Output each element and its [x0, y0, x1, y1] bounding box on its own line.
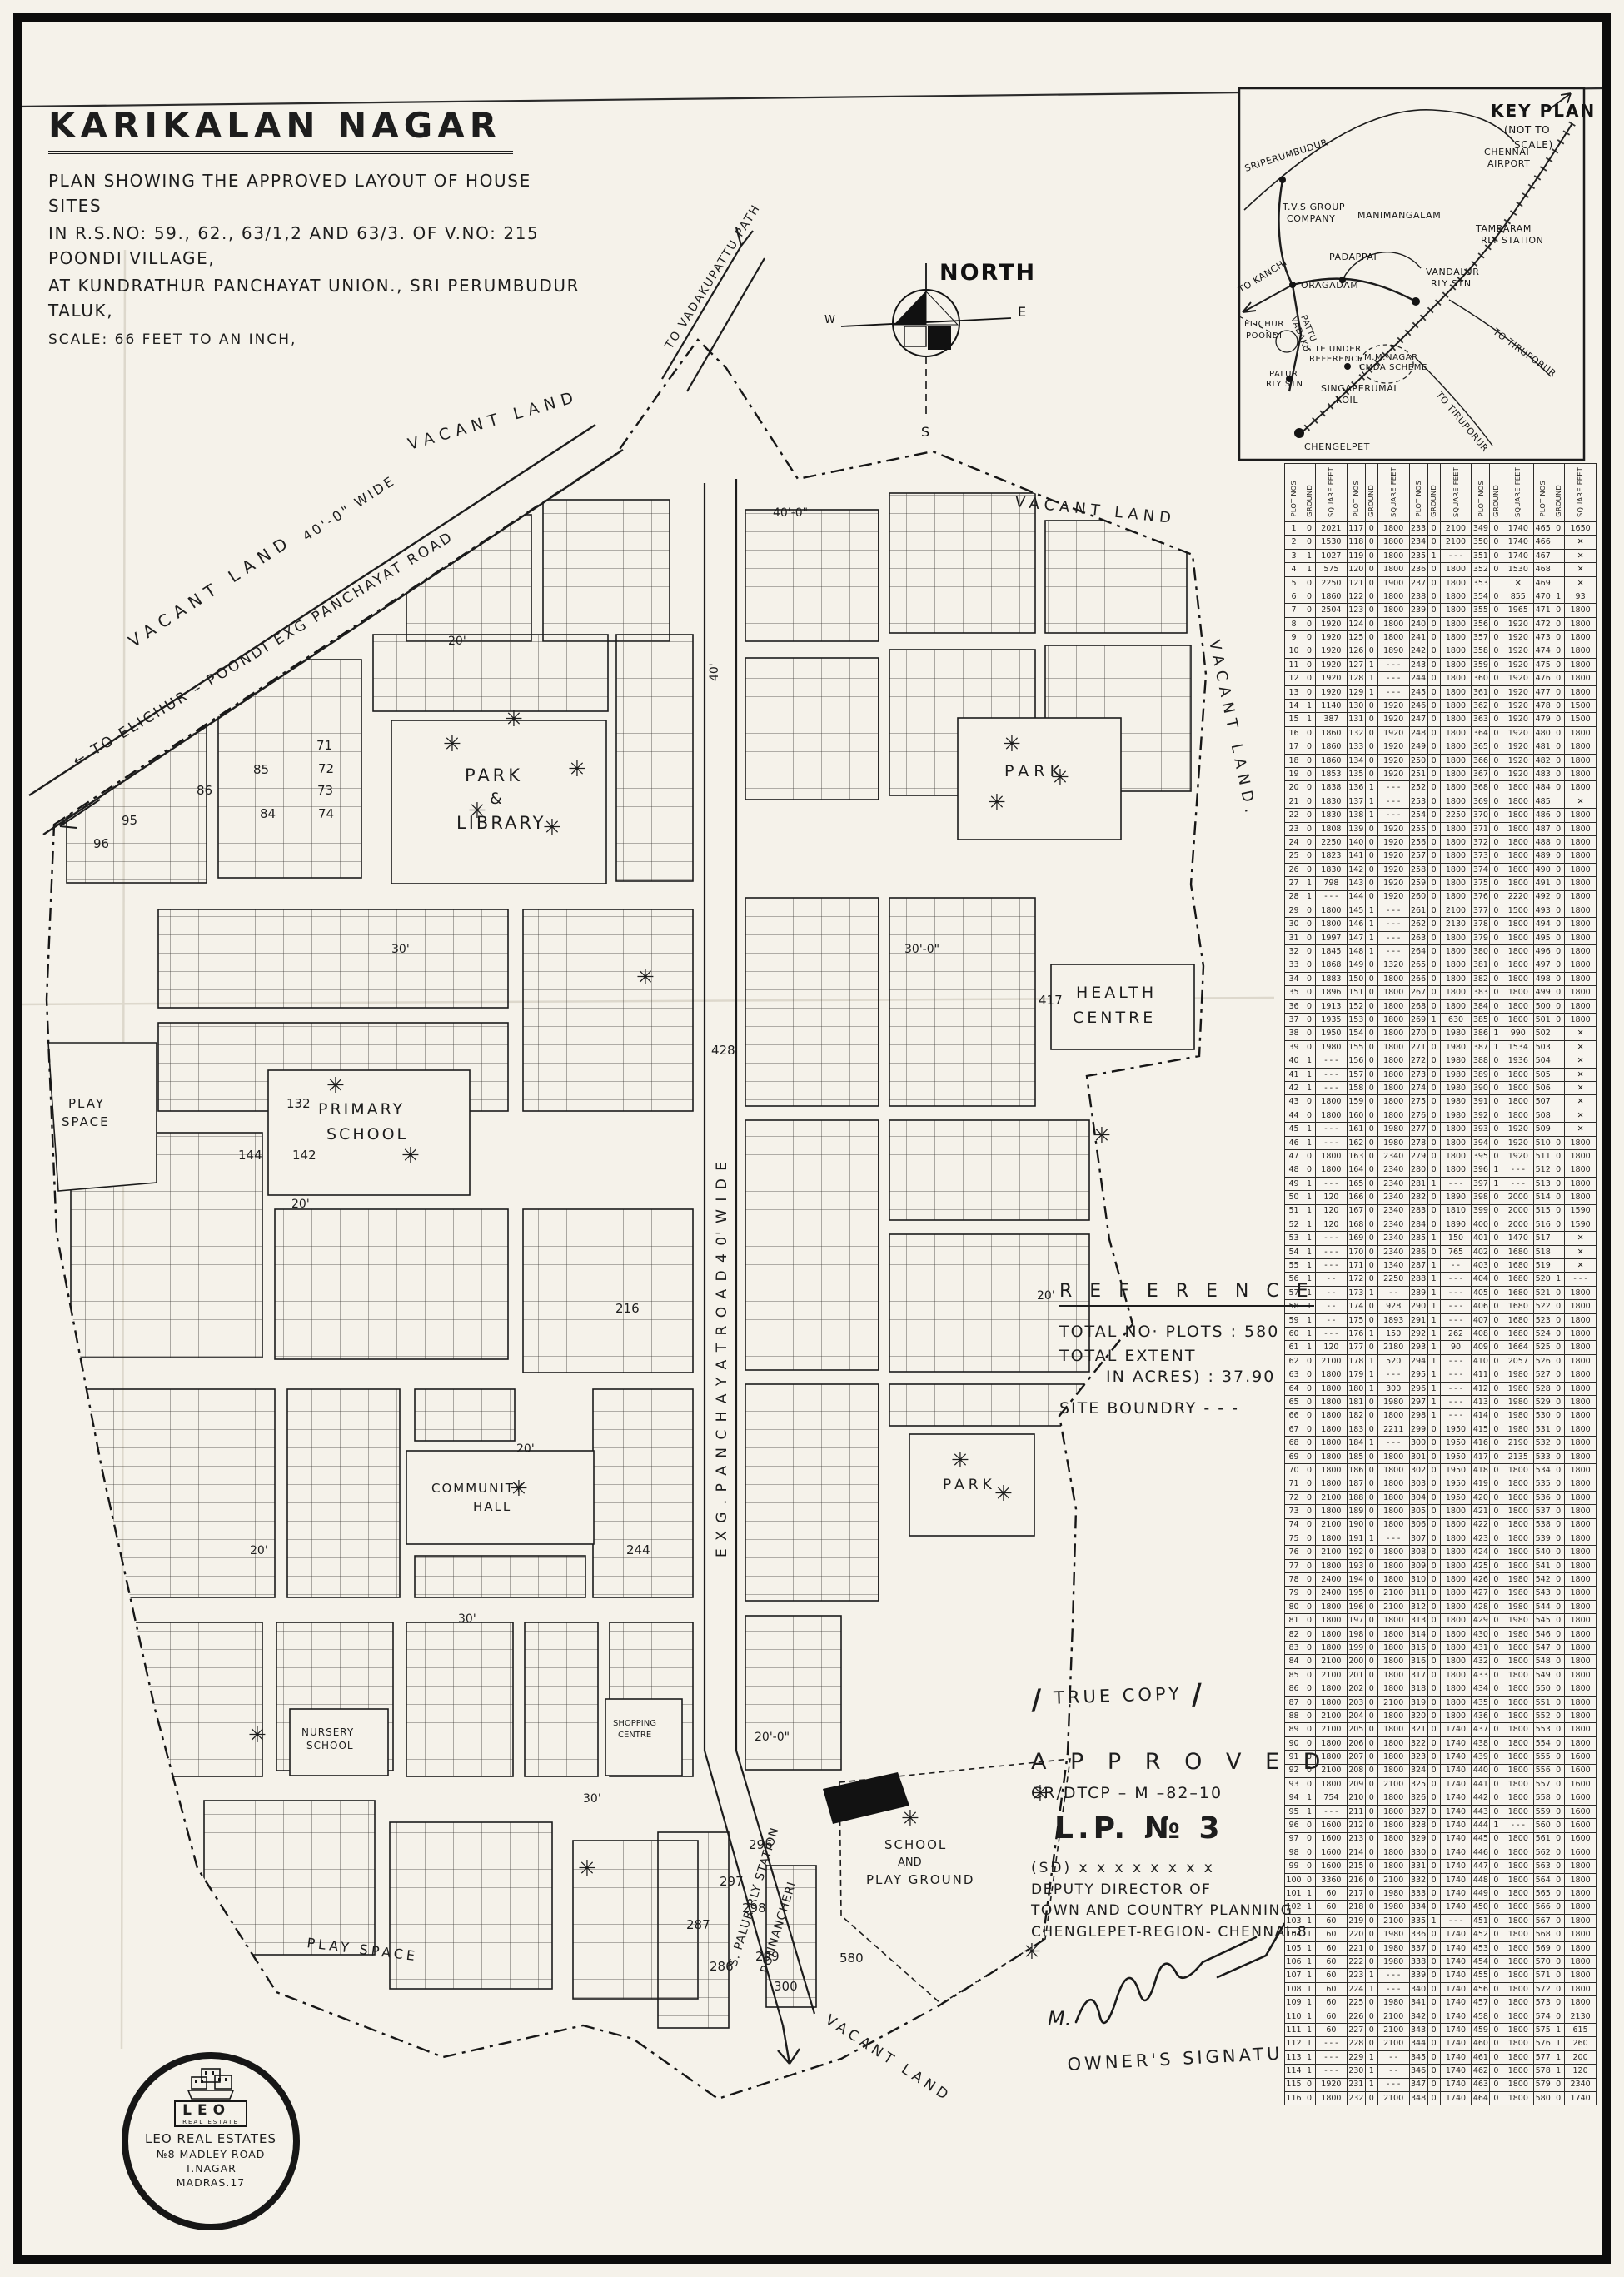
column-header-plot: PLOT NOS [1347, 464, 1365, 522]
table-row: 1000336021602100332017404480180056401800 [1285, 1873, 1597, 1886]
table-row: 571- -1731- -2891- - -4050168052101800 [1285, 1286, 1597, 1299]
table-row: 640180018013002961- - -4120198052801800 [1285, 1382, 1597, 1395]
table-row: 15138713101920247018003630192047901500 [1285, 713, 1597, 726]
slash-mark: / [1191, 1677, 1206, 1711]
stamp-company: LEO REAL ESTATES [145, 2131, 276, 2146]
table-row: 930180020902100325017404410180055701600 [1285, 1777, 1597, 1791]
svg-text:86: 86 [197, 783, 212, 798]
svg-text:PADAPPAI: PADAPPAI [1329, 252, 1377, 262]
table-row: 250182314101920257018003730180048901800 [1285, 850, 1597, 863]
svg-text:M.M.NAGAR: M.M.NAGAR [1364, 353, 1418, 362]
svg-text:40': 40' [708, 663, 721, 681]
table-row: 10216021801980334017404500180056601800 [1285, 1901, 1597, 1914]
table-row: 531- - -16902340285115040101470517✕ [1285, 1232, 1597, 1245]
approver-region: CHENGLEPET-REGION- CHENNAI-8 [1031, 1922, 1328, 1944]
table-row: 740210019001800306018004220180053801800 [1285, 1518, 1597, 1532]
page-title: KARIKALAN NAGAR [48, 105, 513, 154]
approver-dept: TOWN AND COUNTRY PLANNING [1031, 1901, 1328, 1922]
table-row: 201530118018002340210035001740466✕ [1285, 536, 1597, 549]
stamp-badge: LEO REAL ESTATE [174, 2100, 247, 2127]
table-row: 820180019801800314018004300198054601800 [1285, 1627, 1597, 1641]
table-row: 13019201291- - -245018003610192047701800 [1285, 685, 1597, 699]
table-row: 611120177021802931904090166452501800 [1285, 1341, 1597, 1354]
table-row: 41575120018002360180035201530468✕ [1285, 563, 1597, 576]
approved-text: A P P R O V E D [1031, 1746, 1328, 1780]
svg-text:SCHOOL: SCHOOL [306, 1740, 354, 1751]
column-header-sqft: SQUARE FEET [1440, 464, 1472, 522]
svg-text:SINGAPERUMAL: SINGAPERUMAL [1321, 383, 1399, 394]
column-header-ground: GROUND [1303, 464, 1316, 522]
table-row: 951- - -21101800327017404430180055901600 [1285, 1805, 1597, 1818]
approval-number: CR/DTCP – M –82–10 [1031, 1781, 1328, 1806]
svg-text:30': 30' [458, 1612, 476, 1626]
svg-text:✳: ✳ [505, 707, 523, 732]
svg-text:PLAY GROUND: PLAY GROUND [866, 1872, 974, 1887]
table-row: 103160219021003351- - -4510180056701800 [1285, 1914, 1597, 1927]
table-row: 980160021401800330017404460180056201600 [1285, 1846, 1597, 1859]
table-row: 581- -17409282901- - -4060168052201800 [1285, 1300, 1597, 1313]
table-row: 21018301371- - -2530180036901800485✕ [1285, 795, 1597, 808]
table-row: 160186013201920248018003640192048001800 [1285, 726, 1597, 740]
plot-schedule: PLOT NOS GROUND SQUARE FEET PLOT NOS GRO… [1284, 463, 1597, 2105]
table-row: 4301800159018002750198039101800507✕ [1285, 1095, 1597, 1109]
north-compass: NORTH E S W [824, 260, 1036, 440]
table-row: 1111602270210034301740459018005751615 [1285, 2023, 1597, 2036]
true-copy-text: TRUE COPY [1054, 1683, 1183, 1707]
table-row: 30018001461- - -262021303780180049401800 [1285, 918, 1597, 931]
table-row: 601- - -176115029212624080168052401800 [1285, 1328, 1597, 1341]
table-row: 90192012501800241018003570192047301800 [1285, 631, 1597, 645]
primary-school-label: PRIMARY [318, 1100, 405, 1119]
svg-text:SPACE: SPACE [62, 1114, 110, 1129]
table-row: 29018001451- - -261021003770150049301800 [1285, 904, 1597, 917]
table-row: 411- - -157018002730198038901800505✕ [1285, 1068, 1597, 1081]
table-row: 27179814301920259018003750180049101800 [1285, 877, 1597, 890]
table-row: 6501800181019802971- - -4130198052901800 [1285, 1396, 1597, 1409]
svg-text:LIBRARY: LIBRARY [456, 813, 545, 833]
table-row: 32018451481- - -264018003800180049601800 [1285, 945, 1597, 959]
svg-text:POONDI: POONDI [1246, 331, 1283, 341]
svg-text:✳: ✳ [1023, 1940, 1041, 1965]
table-row: 1131- - -2291- -34501740461018005771200 [1285, 2050, 1597, 2064]
svg-text:✳: ✳ [1003, 732, 1021, 757]
table-row: 190185313501920251018003670192048301800 [1285, 768, 1597, 781]
table-row: 1081602241- - -340017404560180057201800 [1285, 1982, 1597, 1995]
table-row: 1071602231- - -339017404550180057101800 [1285, 1969, 1597, 1982]
road-width-label: 40'-0" WIDE [300, 472, 399, 544]
table-row: 340188315001800266018003820180049801800 [1285, 972, 1597, 985]
scale-note: SCALE: 66 FEET TO AN INCH, [48, 331, 581, 348]
table-row: 780240019401800310018004260198054201800 [1285, 1573, 1597, 1587]
svg-text:VACANT LAND.: VACANT LAND. [1205, 639, 1260, 820]
table-row: 100192012601890242018003580192047401800 [1285, 645, 1597, 658]
svg-text:20': 20' [250, 1544, 268, 1557]
svg-text:SCHOOL: SCHOOL [326, 1125, 408, 1143]
svg-text:✳: ✳ [326, 1074, 345, 1099]
keyplan-title: KEY PLAN [1491, 101, 1596, 121]
svg-text:REFERENCE: REFERENCE [1309, 355, 1363, 364]
stamp-region: MADRAS.17 [177, 2176, 246, 2189]
health-centre-area [1051, 964, 1194, 1049]
svg-text:✳: ✳ [994, 1482, 1013, 1507]
svg-text:✳: ✳ [988, 790, 1006, 815]
svg-text:20': 20' [516, 1442, 535, 1456]
table-row: 141114013001920246018003620192047801500 [1285, 700, 1597, 713]
table-row: 10416022001980336017404520180056801800 [1285, 1928, 1597, 1941]
table-row: 37019351530180026916303850180050101800 [1285, 1014, 1597, 1027]
svg-text:✳: ✳ [901, 1806, 919, 1831]
table-row: 880210020401800320018004360180055201800 [1285, 1709, 1597, 1722]
column-header-sqft: SQUARE FEET [1502, 464, 1534, 522]
table-row: 830180019901800315018004310180054701800 [1285, 1642, 1597, 1655]
column-header-ground: GROUND [1427, 464, 1440, 522]
svg-text:✳: ✳ [1093, 1124, 1111, 1148]
svg-text:✳: ✳ [443, 732, 461, 757]
column-header-plot: PLOT NOS [1472, 464, 1490, 522]
svg-text:580: 580 [839, 1951, 864, 1966]
svg-text:74: 74 [318, 806, 334, 821]
svg-text:299: 299 [755, 1949, 780, 1964]
school-playground-label: SCHOOL [884, 1837, 947, 1852]
shopping-centre-label: SHOPPING [613, 1719, 656, 1728]
table-row: 451- - -161019802770180039301920509✕ [1285, 1123, 1597, 1136]
table-row: 10116021701980333017404490180056501800 [1285, 1887, 1597, 1901]
svg-text:71: 71 [316, 738, 332, 753]
park-e-label: PARK [943, 1477, 996, 1493]
svg-text:20': 20' [1037, 1289, 1055, 1303]
north-label: NORTH [939, 260, 1036, 286]
svg-text:KOIL: KOIL [1336, 395, 1358, 406]
svg-text:428: 428 [711, 1043, 735, 1058]
svg-text:144: 144 [238, 1148, 262, 1163]
svg-text:CENTRE: CENTRE [1073, 1009, 1156, 1027]
table-row: 10916022501980341017404570180057301800 [1285, 1996, 1597, 2010]
svg-text:VACANT LAND: VACANT LAND [406, 387, 580, 454]
table-row: 541- - -17002340286076540201680518✕ [1285, 1245, 1597, 1258]
table-row: 800180019602100312018004280198054401800 [1285, 1600, 1597, 1613]
park-library-label: PARK [465, 765, 523, 785]
table-row: 960160021201800328017404441- - -56001600 [1285, 1819, 1597, 1832]
svg-text:CMDA SCHEME: CMDA SCHEME [1359, 363, 1427, 372]
plot-area-table: PLOT NOS GROUND SQUARE FEET PLOT NOS GRO… [1284, 463, 1597, 2105]
table-row: 760210019201800308018004240180054001800 [1285, 1546, 1597, 1559]
svg-text:72: 72 [318, 761, 334, 776]
health-centre-label: HEALTH [1076, 984, 1157, 1002]
total-extent-value: IN ACRES) : 37.90 [1106, 1368, 1314, 1386]
table-row: 75018001911- - -307018004230180053901800 [1285, 1532, 1597, 1545]
subtitle-line: PLAN SHOWING THE APPROVED LAYOUT OF HOUS… [48, 168, 581, 218]
owners-signature-caption: OWNER'S SIGNATURE [1067, 2042, 1313, 2075]
table-header-row: PLOT NOS GROUND SQUARE FEET PLOT NOS GRO… [1285, 464, 1597, 522]
table-row: 22018301381- - -254022503700180048601800 [1285, 809, 1597, 822]
svg-text:RLY STN: RLY STN [1431, 278, 1472, 289]
subtitle-line: AT KUNDRATHUR PANCHAYAT UNION., SRI PERU… [48, 273, 581, 323]
svg-text:30'-0": 30'-0" [904, 943, 939, 956]
table-row: 491- - -165023402811- - -3971- - -513018… [1285, 1177, 1597, 1190]
svg-text:HALL: HALL [473, 1499, 511, 1514]
table-row: 401- - -156018002720198038801936504✕ [1285, 1054, 1597, 1068]
table-row: 360191315201800268018003840180050001800 [1285, 999, 1597, 1013]
svg-text:RLY STATION: RLY STATION [1481, 235, 1544, 246]
table-row: 840210020001800316018004320180054801800 [1285, 1655, 1597, 1668]
svg-text:RLY STN: RLY STN [1266, 380, 1303, 389]
table-row: 900180020601800322017404380180055401800 [1285, 1736, 1597, 1750]
table-row: 20018381361- - -252018003680180048401800 [1285, 781, 1597, 795]
table-row: 311027119018002351- - -35101740467✕ [1285, 549, 1597, 562]
svg-text:(NOT TO: (NOT TO [1504, 124, 1550, 136]
community-hall-area [406, 1451, 594, 1544]
svg-text:95: 95 [122, 813, 137, 828]
svg-text:ORAGADAM: ORAGADAM [1301, 280, 1358, 291]
table-row: 6601800182018002981- - -4140198053001800 [1285, 1409, 1597, 1423]
table-row: 330186814901320265018003810180049701800 [1285, 959, 1597, 972]
table-row: 380195015401800270019803861990502✕ [1285, 1027, 1597, 1040]
column-header-plot: PLOT NOS [1285, 464, 1303, 522]
lp-number: L.P. № 3 [1054, 1806, 1328, 1851]
total-extent: TOTAL EXTENT [1059, 1347, 1314, 1365]
table-row: 11016022602100342017404580180057402130 [1285, 2010, 1597, 2023]
table-row: 690180018501800301019504170213553301800 [1285, 1450, 1597, 1463]
table-row: 860180020201800318018004340180055001800 [1285, 1682, 1597, 1696]
vadakupattu-path-label: TO VADAKUPATTU PATH [662, 202, 763, 352]
table-row: 810180019701800313018004290198054501800 [1285, 1614, 1597, 1627]
svg-text:297: 297 [720, 1874, 744, 1889]
svg-text:20'-0": 20'-0" [755, 1731, 790, 1744]
reference-block: R E F E R E N C E TOTAL NO· PLOTS : 580 … [1059, 1281, 1314, 1423]
table-row: 910180020701800323017404390180055501600 [1285, 1751, 1597, 1764]
svg-text:S: S [921, 424, 929, 440]
table-row: 80192012401800240018003560192047201800 [1285, 617, 1597, 630]
column-header-sqft: SQUARE FEET [1377, 464, 1409, 522]
table-row: 720210018801800304019504200180053601800 [1285, 1491, 1597, 1504]
table-row: 70250412301800239018003550196547101800 [1285, 604, 1597, 617]
table-row: 421- - -158018002740198039001800506✕ [1285, 1082, 1597, 1095]
svg-text:216: 216 [615, 1301, 640, 1316]
column-header-ground: GROUND [1490, 464, 1502, 522]
svg-text:132: 132 [286, 1096, 311, 1111]
svg-text:296: 296 [749, 1837, 773, 1852]
table-row: 561- -172022502881- - -404016805201- - - [1285, 1273, 1597, 1286]
table-row: 970160021301800329017404450180056101600 [1285, 1832, 1597, 1846]
table-row: 3901980155018002710198038711534503✕ [1285, 1040, 1597, 1054]
owner-signature: M. OWNER'S SIGNATURE [1048, 1924, 1313, 2075]
svg-text:287: 287 [686, 1917, 710, 1932]
table-row: 790240019502100311018004270198054301800 [1285, 1587, 1597, 1600]
table-row: 920210020801800324017404400180055601600 [1285, 1764, 1597, 1777]
title-block: KARIKALAN NAGAR PLAN SHOWING THE APPROVE… [48, 105, 581, 348]
table-row: 281- - -14401920260018003760222049201800 [1285, 890, 1597, 904]
table-row: 5022501210190023701800353✕469✕ [1285, 576, 1597, 590]
table-row: 50112016602340282018903980200051401800 [1285, 1191, 1597, 1204]
table-row: 10616022201980338017404540180057001800 [1285, 1956, 1597, 1969]
stamp-address: №8 MADLEY ROAD [157, 2148, 266, 2160]
svg-text:W: W [824, 314, 835, 326]
table-row: 94175421001800326017404420180055801600 [1285, 1791, 1597, 1805]
table-row: 31019971471- - -263018003790180049501800 [1285, 931, 1597, 944]
column-header-plot: PLOT NOS [1409, 464, 1427, 522]
signature-initial: M. [1048, 2007, 1071, 2030]
table-row: 1160180023202100348017404640180058001740 [1285, 2091, 1597, 2105]
column-header-sqft: SQUARE FEET [1316, 464, 1348, 522]
table-row: 115019202311- - -34701740463018005790234… [1285, 2078, 1597, 2091]
table-row: 180186013401920250018003660192048201800 [1285, 754, 1597, 767]
table-row: 591- -175018932911- - -4070168052301800 [1285, 1313, 1597, 1327]
svg-text:244: 244 [626, 1542, 650, 1557]
svg-text:CHENGELPET: CHENGELPET [1304, 441, 1370, 452]
svg-text:✳: ✳ [636, 965, 655, 990]
table-row: 990160021501800331017404470180056301800 [1285, 1860, 1597, 1873]
leo-real-estates-stamp: LEO REAL ESTATE LEO REAL ESTATES №8 MADL… [122, 2052, 300, 2230]
table-row: 870180020302100319018004350180055101800 [1285, 1696, 1597, 1709]
svg-text:VANDALUR: VANDALUR [1426, 267, 1479, 277]
svg-text:30': 30' [391, 943, 410, 956]
table-row: 670180018302211299019504150198053101800 [1285, 1423, 1597, 1436]
table-row: 60186012201800238018003540855470193 [1285, 590, 1597, 603]
subtitle-line: IN R.S.NO: 59., 62., 63/1,2 AND 63/3. OF… [48, 221, 581, 271]
table-row: 68018001841- - -300019504160219053201800 [1285, 1437, 1597, 1450]
table-row: 230180813901920255018003710180048701800 [1285, 822, 1597, 835]
table-row: 461- - -16201980278018003940192051001800 [1285, 1136, 1597, 1149]
svg-text:96: 96 [93, 836, 109, 851]
table-row: 260183014201920258018003740180049001800 [1285, 863, 1597, 876]
svg-text:20': 20' [448, 635, 466, 648]
table-row: 11019201271- - -243018003590192047501800 [1285, 658, 1597, 671]
true-copy-stamp: / TRUE COPY / [1030, 1677, 1205, 1716]
table-row: 470180016302340279018003950192051101800 [1285, 1149, 1597, 1163]
table-row: 700180018601800302019504180180053401800 [1285, 1463, 1597, 1477]
total-plots: TOTAL NO· PLOTS : 580 [1059, 1323, 1314, 1341]
svg-text:ELICHUR: ELICHUR [1244, 320, 1284, 329]
slash-mark: / [1030, 1683, 1045, 1717]
table-row: 1141- - -2301- -34601740462018005781120 [1285, 2065, 1597, 2078]
stamp-city: T.NAGAR [185, 2162, 237, 2175]
svg-text:✳: ✳ [401, 1143, 420, 1168]
table-row: 1121- - -2280210034401740460018005761260 [1285, 2037, 1597, 2050]
table-row: 63018001791- - -2951- - -411019805270180… [1285, 1368, 1597, 1382]
table-row: 12019201281- - -244018003600192047601800 [1285, 672, 1597, 685]
svg-text:298: 298 [742, 1901, 766, 1916]
table-row: 850210020101800317018004330180054901800 [1285, 1668, 1597, 1682]
svg-text:CHENNAI: CHENNAI [1484, 147, 1529, 157]
svg-text:✳: ✳ [578, 1856, 596, 1881]
table-row: 52112016802340284018904000200051601590 [1285, 1218, 1597, 1231]
svg-text:✳: ✳ [568, 757, 586, 782]
column-header-sqft: SQUARE FEET [1565, 464, 1597, 522]
svg-text:&: & [490, 790, 502, 808]
stamp-badge-text: LEO [182, 2102, 231, 2119]
site-boundary-legend: SITE BOUNDRY - - - [1059, 1399, 1314, 1418]
building-icon [182, 2065, 240, 2102]
stamp-badge-subtext: REAL ESTATE [182, 2119, 239, 2125]
table-row: 480180016402340280018003961- - -51201800 [1285, 1163, 1597, 1177]
svg-text:AND: AND [898, 1856, 922, 1869]
svg-text:MANIMANGALAM: MANIMANGALAM [1357, 210, 1441, 221]
svg-text:286: 286 [710, 1959, 734, 1974]
community-hall-label: COMMUNITY [431, 1481, 524, 1496]
park-ne-label: PARK [1004, 762, 1065, 780]
nursery-school-label: NURSERY [301, 1726, 354, 1738]
vacant-land-label: VACANT LAND [125, 530, 296, 651]
svg-text:SITE UNDER: SITE UNDER [1306, 345, 1362, 354]
svg-text:85: 85 [253, 762, 269, 777]
svg-text:E: E [1018, 304, 1026, 320]
svg-text:CENTRE: CENTRE [618, 1731, 651, 1740]
svg-text:84: 84 [260, 806, 276, 821]
approval-block: A P P R O V E D CR/DTCP – M –82–10 L.P. … [1031, 1746, 1328, 1943]
table-row: 10202111701800233021003490174046501650 [1285, 522, 1597, 536]
svg-text:✳: ✳ [248, 1723, 267, 1748]
svg-text:300: 300 [774, 1979, 798, 1994]
table-row: 51112016702340283018103990200051501590 [1285, 1204, 1597, 1218]
svg-text:COMPANY: COMPANY [1287, 213, 1335, 224]
column-header-ground: GROUND [1365, 464, 1377, 522]
svg-text:417: 417 [1039, 993, 1063, 1008]
svg-text:TAMBARAM: TAMBARAM [1475, 223, 1532, 234]
svg-text:PALUR: PALUR [1269, 370, 1298, 379]
svg-text:30': 30' [583, 1792, 601, 1806]
table-row: 890210020501800321017404370180055301800 [1285, 1723, 1597, 1736]
reference-title: R E F E R E N C E [1059, 1281, 1314, 1307]
svg-text:AIRPORT: AIRPORT [1487, 158, 1530, 169]
svg-text:73: 73 [317, 783, 333, 798]
table-body: 1020211170180023302100349017404650165020… [1285, 522, 1597, 2105]
column-header-ground: GROUND [1552, 464, 1565, 522]
approver-title: DEPUTY DIRECTOR OF [1031, 1880, 1328, 1901]
column-header-plot: PLOT NOS [1534, 464, 1552, 522]
table-row: 4401800160018002760198039201800508✕ [1285, 1109, 1597, 1122]
table-row: 770180019301800309018004250180054101800 [1285, 1559, 1597, 1572]
svg-text:T.V.S GROUP: T.V.S GROUP [1282, 202, 1345, 212]
svg-text:✳: ✳ [951, 1448, 969, 1473]
svg-text:20': 20' [291, 1198, 310, 1211]
table-row: 710180018701800303019504190180053501800 [1285, 1477, 1597, 1491]
svg-text:142: 142 [292, 1148, 316, 1163]
svg-text:40'-0": 40'-0" [773, 506, 808, 520]
table-row: 10516022101980337017404530180056901800 [1285, 1941, 1597, 1955]
table-row: 170186013301920249018003650192048101800 [1285, 740, 1597, 754]
sd-marks: (SD) x x x x x x x x [1031, 1858, 1328, 1880]
table-row: 620210017815202941- - -4100205752601800 [1285, 1354, 1597, 1368]
table-row: 551- - -171013402871- -40301680519✕ [1285, 1259, 1597, 1273]
table-row: 240225014001920256018003720180048801800 [1285, 835, 1597, 849]
exg-panchayat-road-label: E X G . P A N C H A Y A T R O A D 4 0' W… [714, 1160, 730, 1557]
play-space-label: PLAY [68, 1096, 105, 1111]
key-plan: KEY PLAN (NOT TO SCALE) SRIPERUMBUDUR T.… [1236, 88, 1596, 460]
scanned-layout-plan: ✳✳✳ ✳✳✳ ✳✳✳ ✳✳✳ ✳✳✳ ✳✳✳ ✳✳ PARK & LIBRAR… [0, 0, 1624, 2277]
table-row: 350189615101800267018003830180049901800 [1285, 986, 1597, 999]
table-row: 730180018901800305018004210180053701800 [1285, 1505, 1597, 1518]
